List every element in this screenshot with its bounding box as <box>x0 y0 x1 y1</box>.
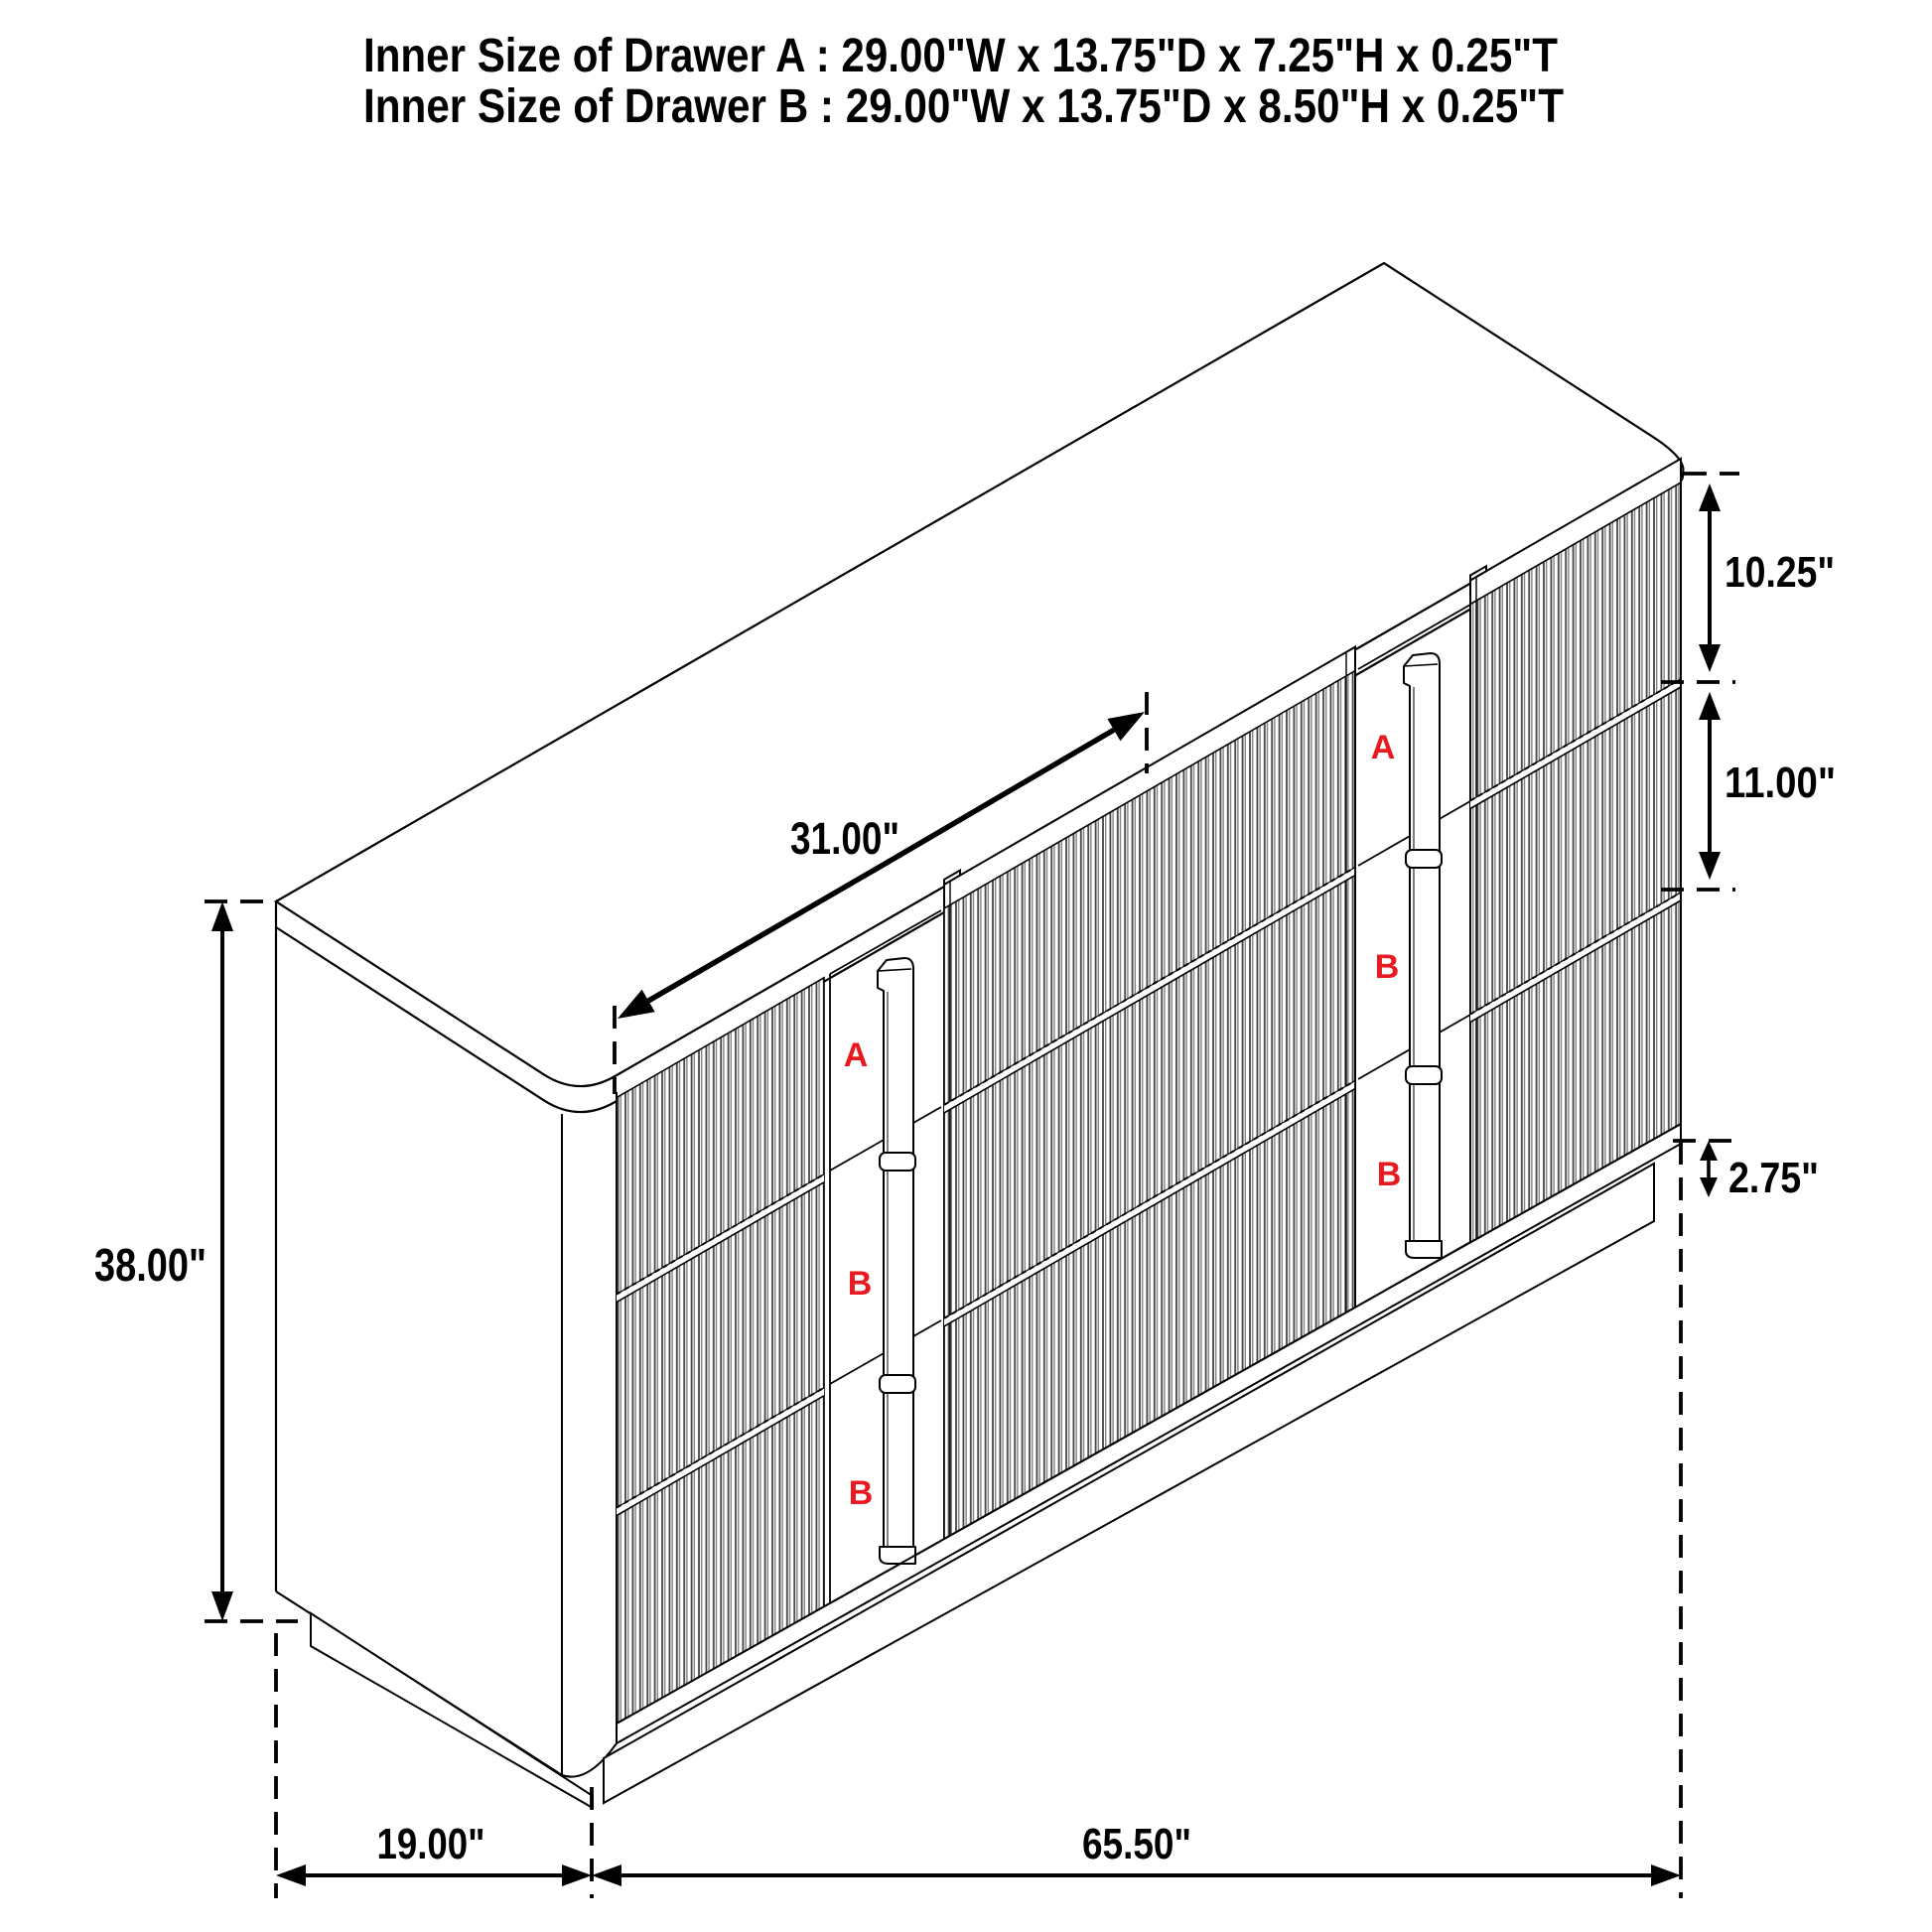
svg-text:A: A <box>844 1036 869 1074</box>
svg-text:B: B <box>1375 948 1400 986</box>
svg-text:Inner Size of Drawer A : 29.00: Inner Size of Drawer A : 29.00"W x 13.75… <box>363 30 1558 82</box>
svg-text:B: B <box>849 1474 874 1512</box>
svg-text:19.00": 19.00" <box>377 1820 485 1868</box>
svg-text:2.75": 2.75" <box>1728 1154 1819 1202</box>
svg-text:10.25": 10.25" <box>1725 548 1835 597</box>
svg-text:Inner Size of Drawer B : 29.00: Inner Size of Drawer B : 29.00"W x 13.75… <box>363 80 1564 133</box>
svg-text:38.00": 38.00" <box>94 1239 207 1291</box>
svg-text:65.50": 65.50" <box>1082 1820 1191 1868</box>
svg-text:A: A <box>1371 729 1396 766</box>
svg-text:B: B <box>848 1265 873 1303</box>
svg-text:B: B <box>1377 1156 1402 1193</box>
svg-text:11.00": 11.00" <box>1725 759 1836 807</box>
svg-text:31.00": 31.00" <box>790 813 899 864</box>
